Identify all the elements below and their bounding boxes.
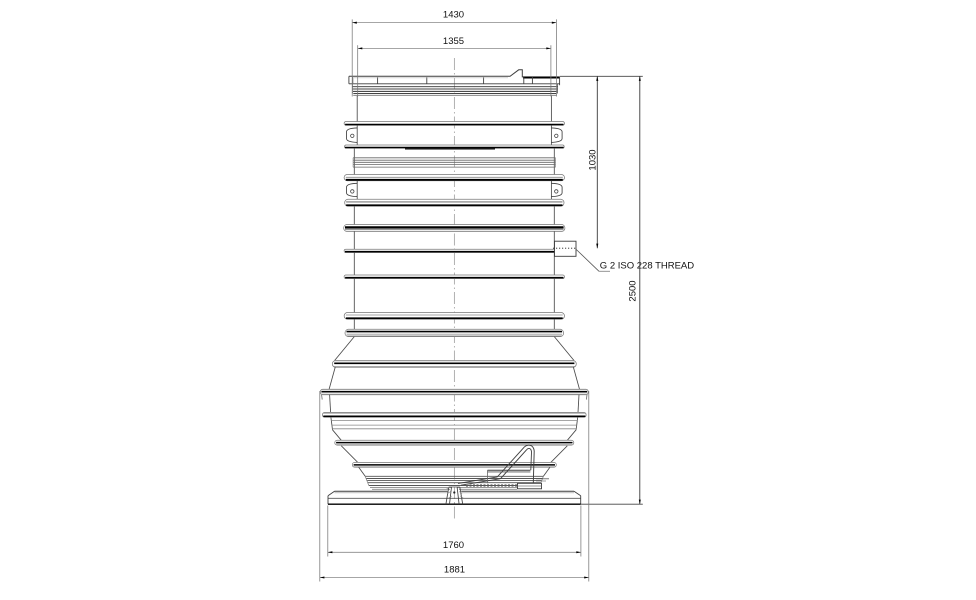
svg-text:1030: 1030 bbox=[587, 149, 598, 170]
svg-text:1355: 1355 bbox=[443, 36, 464, 47]
svg-text:1881: 1881 bbox=[444, 565, 465, 576]
svg-text:1760: 1760 bbox=[443, 540, 464, 551]
svg-text:2500: 2500 bbox=[628, 280, 639, 301]
svg-text:1430: 1430 bbox=[443, 10, 464, 21]
svg-text:G 2 ISO 228 THREAD: G 2 ISO 228 THREAD bbox=[600, 260, 694, 271]
